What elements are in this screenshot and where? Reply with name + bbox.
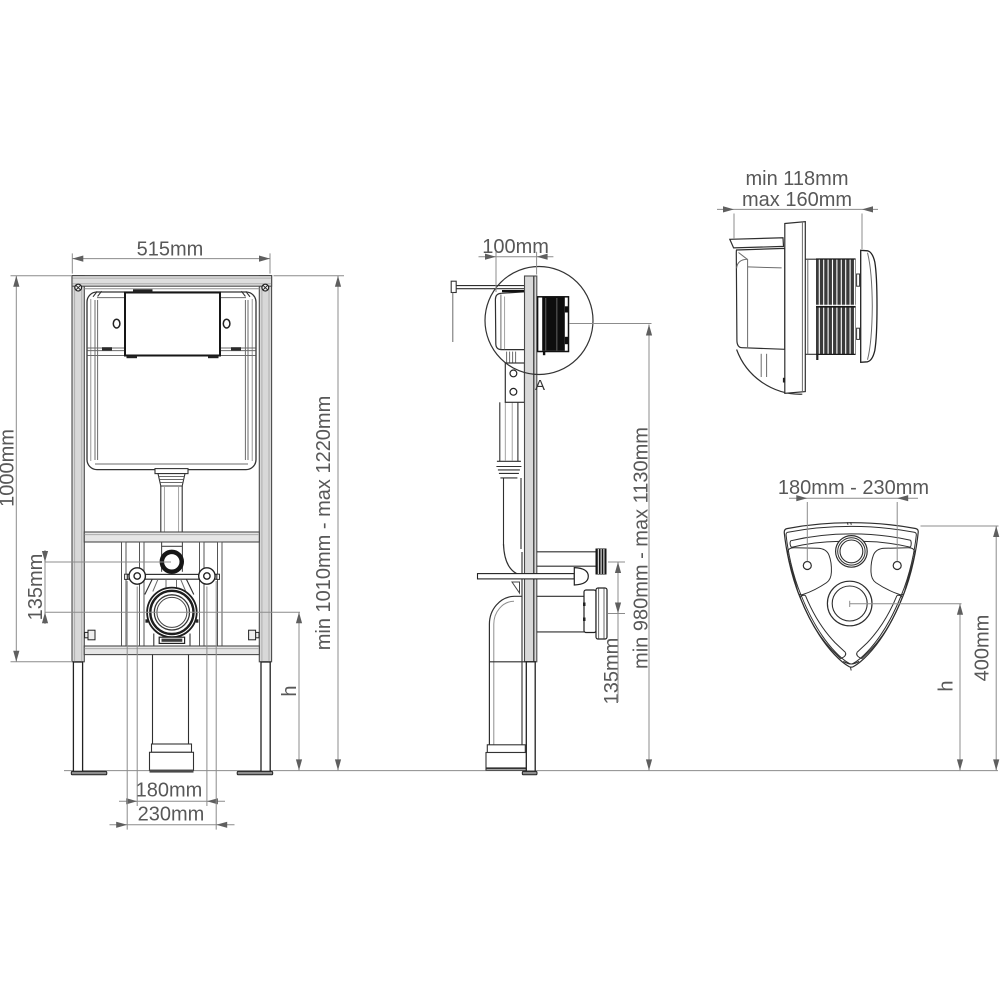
svg-text:135mm: 135mm [601,638,623,705]
svg-text:1000mm: 1000mm [0,429,19,507]
svg-text:A: A [535,377,545,394]
svg-text:min 1010mm - max 1220mm: min 1010mm - max 1220mm [313,396,335,651]
svg-text:400mm: 400mm [972,615,994,682]
svg-text:180mm: 180mm [136,780,203,802]
svg-text:515mm: 515mm [137,239,204,261]
svg-text:min 118mm: min 118mm [746,168,849,190]
svg-text:h: h [279,685,301,696]
svg-text:h: h [936,680,958,691]
svg-text:135mm: 135mm [25,554,47,621]
svg-text:100mm: 100mm [482,236,549,258]
svg-text:230mm: 230mm [138,804,205,826]
svg-text:max 160mm: max 160mm [742,189,852,211]
